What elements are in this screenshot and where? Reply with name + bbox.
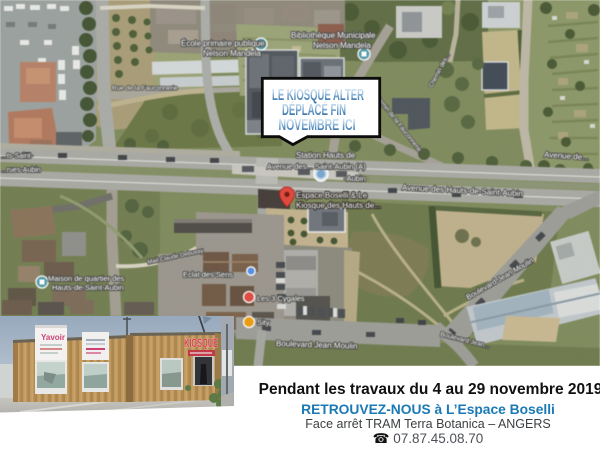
svg-text:KIOSQUE: KIOSQUE — [184, 338, 218, 350]
svg-text:Maison de quartier des: Maison de quartier des — [48, 274, 125, 283]
svg-text:Nelson Mandela: Nelson Mandela — [203, 49, 261, 58]
svg-text:École primaire publique: École primaire publique — [181, 39, 265, 48]
svg-text:NOVEMBRE ICI: NOVEMBRE ICI — [279, 117, 356, 134]
svg-text:Nelson Mandela: Nelson Mandela — [313, 41, 371, 50]
svg-text:...ts-Saint-: ...ts-Saint- — [1, 153, 34, 160]
svg-text:Les 3 Cygales: Les 3 Cygales — [257, 294, 305, 303]
svg-text:...rues-Aubin: ...rues-Aubin — [1, 167, 41, 174]
svg-text:Rue de la Fauconnerie: Rue de la Fauconnerie — [112, 85, 178, 92]
svg-text:Espace Boselli & Le: Espace Boselli & Le — [296, 191, 368, 200]
svg-text:Yavoir: Yavoir — [41, 333, 65, 342]
svg-text:Hauts-de-Saint-Aubin: Hauts-de-Saint-Aubin — [52, 283, 124, 292]
svg-text:Avenue des... Saint-Aubin (A): Avenue des... Saint-Aubin (A) — [267, 162, 366, 171]
svg-text:Station Hauts de: Station Hauts de — [296, 151, 356, 160]
svg-text:-Aubin: -Aubin — [344, 174, 366, 183]
svg-text:Eclat des Sens: Eclat des Sens — [183, 270, 233, 279]
svg-text:Sity: Sity — [257, 318, 270, 327]
svg-text:Kiosque des Hauts de...: Kiosque des Hauts de... — [296, 201, 381, 210]
svg-text:Bibliothèque Municipale: Bibliothèque Municipale — [291, 31, 376, 40]
